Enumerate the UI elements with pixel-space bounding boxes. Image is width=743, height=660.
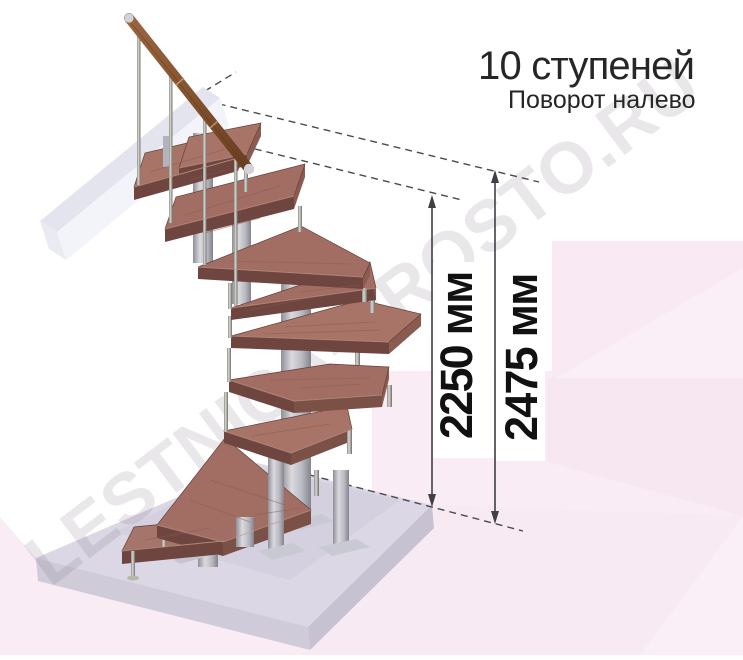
svg-text:2250 мм: 2250 мм: [431, 272, 482, 439]
svg-text:2475 мм: 2475 мм: [496, 274, 547, 441]
svg-text:Поворот налево: Поворот налево: [508, 86, 696, 114]
svg-text:10 ступеней: 10 ступеней: [478, 44, 694, 88]
